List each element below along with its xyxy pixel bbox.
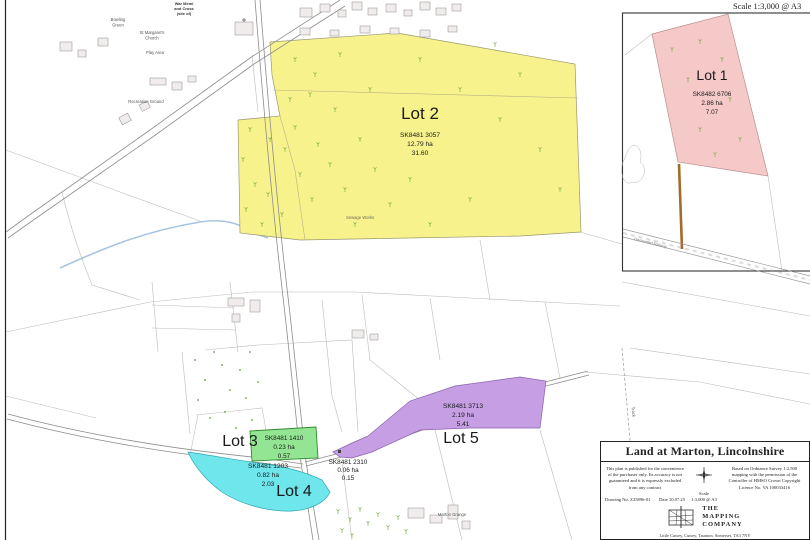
- svg-text:(site of): (site of): [177, 11, 192, 16]
- paddock-ref: SK8481 1410: [265, 435, 304, 442]
- play-area-label: Play Area: [146, 50, 165, 55]
- lot4-name: Lot 4: [276, 483, 312, 500]
- mapping-company-name: THE MAPPING COMPANY: [702, 505, 742, 529]
- os-credit-text: Based on Ordnance Survey 1:2,500 mapping…: [723, 466, 806, 503]
- lot2-name: Lot 2: [401, 104, 439, 123]
- svg-text:12.79 ha: 12.79 ha: [407, 141, 433, 148]
- svg-text:0.57: 0.57: [278, 453, 291, 460]
- compass-icon: [695, 466, 713, 484]
- lot5-parcel: [333, 377, 546, 458]
- mapping-company-logo-icon: [667, 505, 697, 529]
- scale-value: 1:3,000 @ A3: [685, 497, 723, 503]
- lot5-name: Lot 5: [443, 430, 479, 447]
- small-parcel-marker: [338, 450, 341, 453]
- grange-label: Marton Grange: [438, 512, 467, 517]
- inset-map: Dismantled Railway Lot 1 SK8482 6706 2.8…: [622, 13, 810, 284]
- svg-text:Green: Green: [112, 23, 124, 28]
- company-address: Little Cutsey, Cutsey, Taunton, Somerset…: [601, 533, 809, 538]
- recreation-ground-label: Recreation Ground: [128, 99, 164, 104]
- track-label: Track: [630, 406, 636, 418]
- svg-text:2.03: 2.03: [262, 481, 275, 488]
- plan-title: Land at Marton, Lincolnshire: [601, 442, 809, 462]
- lot4-ref: SK8481 1203: [248, 463, 288, 470]
- svg-text:0.06 ha: 0.06 ha: [337, 467, 359, 474]
- disclaimer-text: This plan is published for the convenien…: [605, 466, 685, 491]
- church-cross-icon: [242, 18, 246, 22]
- svg-text:Church: Church: [145, 36, 159, 41]
- church-label: St Margaret's: [140, 30, 165, 35]
- sewage-works-label: Sewage Works: [346, 215, 374, 220]
- svg-text:2.86 ha: 2.86 ha: [701, 100, 723, 107]
- svg-text:0.23 ha: 0.23 ha: [273, 444, 295, 451]
- drawing-number: Drawing No. Z25896-01: [605, 497, 651, 503]
- stream: [60, 221, 268, 268]
- drawing-date: Date 10.07.25: [659, 497, 685, 503]
- svg-text:2.19 ha: 2.19 ha: [452, 412, 474, 419]
- svg-text:5.41: 5.41: [457, 421, 470, 428]
- svg-text:31.60: 31.60: [412, 150, 429, 157]
- tree-symbols-south: [337, 507, 408, 538]
- war-memorial-label: War Meml and Cross (site of): [174, 1, 194, 16]
- lot3-name: Lot 3: [222, 433, 258, 450]
- lot1-name: Lot 1: [696, 67, 727, 83]
- small-parcel-ref: SK8481 2310: [329, 459, 368, 466]
- lot1-ref: SK8482 6706: [693, 91, 732, 98]
- svg-text:0.82 ha: 0.82 ha: [257, 472, 279, 479]
- orchard-dots: [194, 351, 259, 429]
- bowling-green-label: Bowling: [111, 17, 126, 22]
- lot5-ref: SK8481 3713: [443, 403, 483, 410]
- svg-text:7.07: 7.07: [706, 109, 719, 116]
- svg-text:0.15: 0.15: [342, 475, 355, 482]
- title-block: Land at Marton, Lincolnshire This plan i…: [600, 441, 810, 540]
- lot2-ref: SK8481 3057: [400, 132, 440, 139]
- scale-note: Scale 1:3,000 @ A3: [733, 1, 801, 11]
